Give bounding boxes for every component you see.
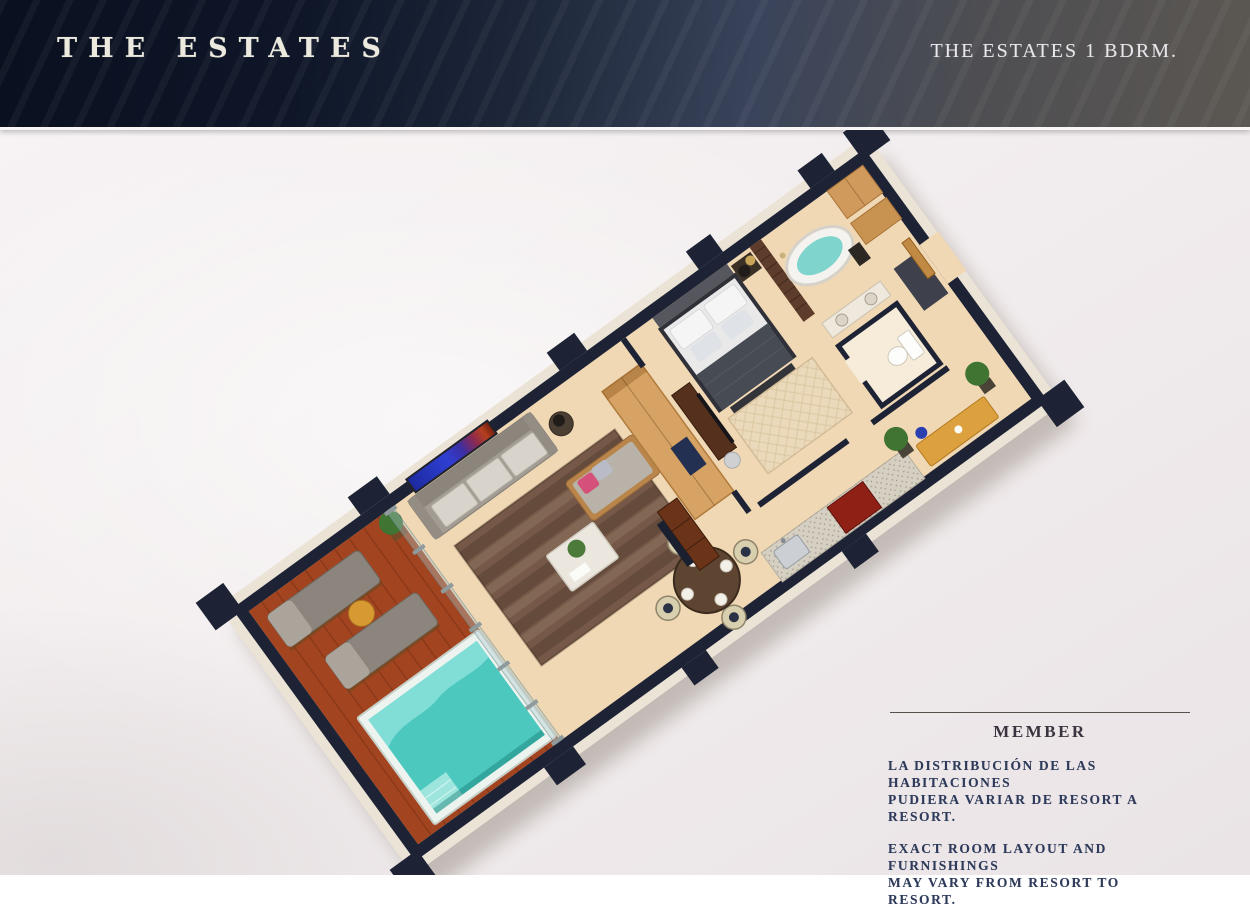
brand-title: THE ESTATES xyxy=(57,33,392,64)
masthead: THE ESTATES THE ESTATES 1 BDRM. xyxy=(0,0,1250,130)
member-heading: MEMBER xyxy=(888,722,1192,742)
disclaimer-block: MEMBER LA DISTRIBUCIÓN DE LAS HABITACION… xyxy=(888,703,1192,922)
brochure-page: THE ESTATES THE ESTATES 1 BDRM. MEMBER L… xyxy=(0,0,1250,875)
disclaimer-spanish: LA DISTRIBUCIÓN DE LAS HABITACIONES PUDI… xyxy=(888,757,1192,825)
disclaimer-english: EXACT ROOM LAYOUT AND FURNISHINGS MAY VA… xyxy=(888,840,1192,908)
divider-rule xyxy=(890,712,1190,713)
unit-type-label: THE ESTATES 1 BDRM. xyxy=(930,40,1178,63)
